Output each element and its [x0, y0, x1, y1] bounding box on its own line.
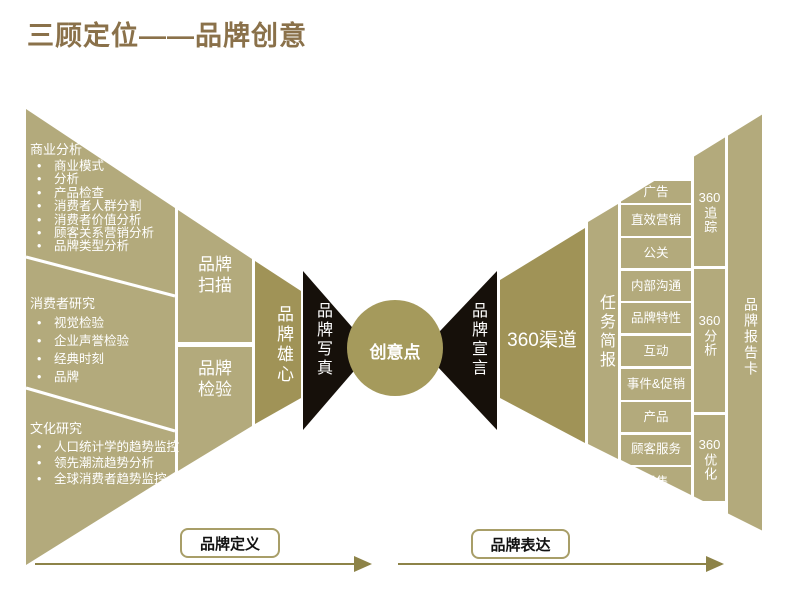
brand-portrait-label: 品牌写真: [301, 302, 334, 378]
loop-optimize-label: 360 优化: [694, 437, 725, 481]
brand-scan-label: 品牌扫描: [178, 254, 252, 296]
channel-label-identity: 品牌特性: [618, 310, 694, 327]
brand-definition-label: 品牌定义: [180, 528, 280, 558]
list-item: 经典时刻: [30, 350, 129, 368]
section-list: 人口统计学的趋势监控 领先潮流趋势分析 全球消费者趋势监控: [30, 439, 179, 487]
channel-label-retail: 零售: [618, 474, 694, 491]
brand-expression-label: 品牌表达: [471, 529, 570, 559]
channels-360-label: 360渠道: [498, 325, 586, 352]
list-item: 品牌: [30, 368, 129, 386]
list-item: 品牌类型分析: [30, 240, 154, 253]
section-culture-research: 文化研究 人口统计学的趋势监控 领先潮流趋势分析 全球消费者趋势监控: [30, 421, 179, 487]
channel-label-product: 产品: [618, 409, 694, 426]
loop-analyze-label: 360 分析: [694, 313, 725, 357]
section-business-analysis: 商业分析 商业模式 分析 产品检查 消费者人群分割 消费者价值分析 顾客关系营销…: [30, 142, 154, 254]
channel-label-ad: 广告: [618, 184, 694, 201]
list-item: 消费者人群分割: [30, 200, 154, 213]
list-item: 商业模式: [30, 160, 154, 173]
list-item: 全球消费者趋势监控: [30, 471, 179, 487]
idea-point-label: 创意点: [347, 338, 443, 363]
list-item: 企业声誉检验: [30, 332, 129, 350]
section-header: 商业分析: [30, 142, 154, 157]
brand-report-card-label: 品牌报告卡: [730, 297, 761, 377]
channel-label-events: 事件&促销: [618, 376, 694, 393]
section-list: 商业模式 分析 产品检查 消费者人群分割 消费者价值分析 顾客关系营销分析 品牌…: [30, 160, 154, 254]
channel-label-internal: 内部沟通: [618, 278, 694, 295]
channel-label-pr: 公关: [618, 245, 694, 262]
list-item: 视觉检验: [30, 314, 129, 332]
section-list: 视觉检验 企业声誉检验 经典时刻 品牌: [30, 314, 129, 386]
brand-ambition-label: 品牌雄心: [260, 305, 296, 385]
section-header: 文化研究: [30, 421, 179, 436]
brand-check-label: 品牌检验: [178, 358, 252, 400]
loop-track-shape: [694, 110, 725, 266]
page-title: 三顾定位——品牌创意: [27, 14, 307, 53]
section-header: 消费者研究: [30, 296, 129, 311]
channel-label-interactive: 互动: [618, 343, 694, 360]
channel-label-direct: 直效营销: [618, 212, 694, 229]
slide: 三顾定位——品牌创意 商业分析 商业模式 分析 产品检查 消费者人群分割 消费者…: [0, 0, 800, 593]
list-item: 分析: [30, 173, 154, 186]
list-item: 领先潮流趋势分析: [30, 455, 179, 471]
channel-label-service: 顾客服务: [618, 441, 694, 458]
brand-manifesto-label: 品牌宣言: [456, 302, 489, 378]
list-item: 人口统计学的趋势监控: [30, 439, 179, 455]
task-brief-label: 任务简报: [586, 294, 617, 370]
loop-track-label: 360 追踪: [694, 190, 725, 234]
section-consumer-research: 消费者研究 视觉检验 企业声誉检验 经典时刻 品牌: [30, 296, 129, 386]
